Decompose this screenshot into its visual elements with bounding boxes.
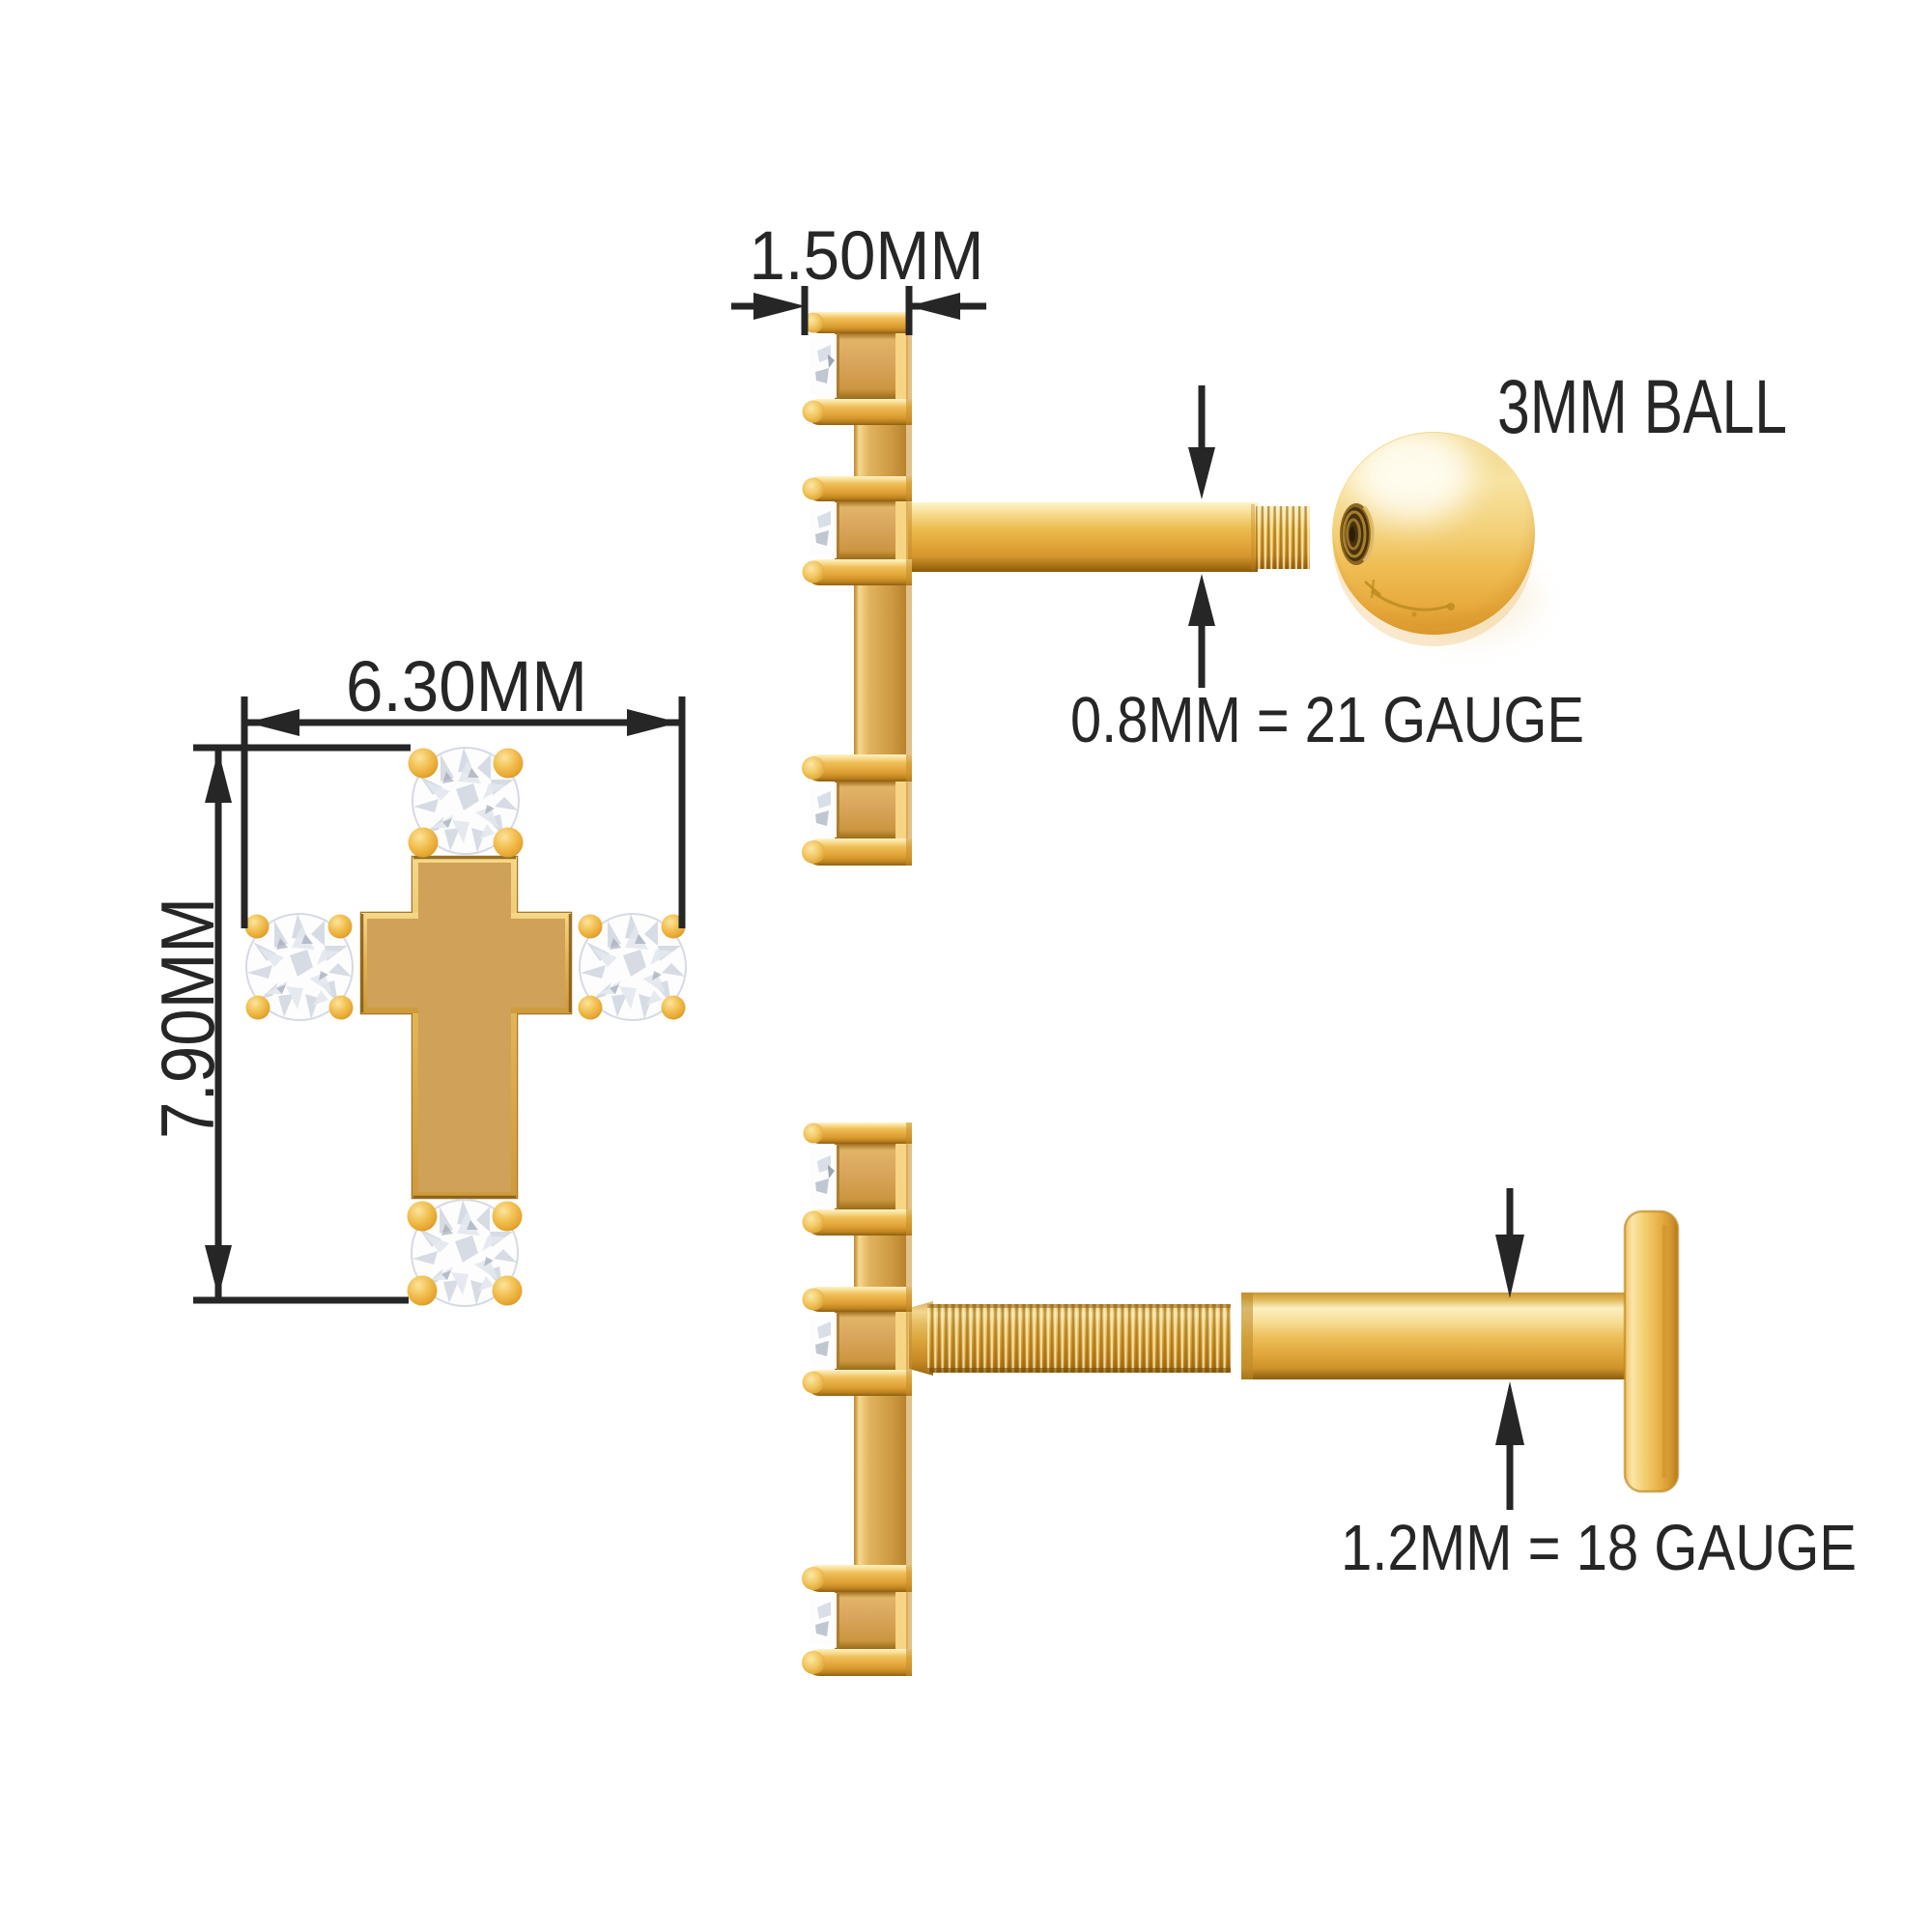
svg-text:0.8MM = 21 GAUGE: 0.8MM = 21 GAUGE (1070, 684, 1584, 756)
svg-text:1.50MM: 1.50MM (750, 218, 984, 295)
svg-text:3MM BALL: 3MM BALL (1497, 363, 1787, 449)
svg-text:6.30MM: 6.30MM (346, 646, 587, 726)
svg-text:7.90MM: 7.90MM (145, 897, 230, 1139)
svg-text:1.2MM = 18 GAUGE: 1.2MM = 18 GAUGE (1341, 1512, 1857, 1584)
